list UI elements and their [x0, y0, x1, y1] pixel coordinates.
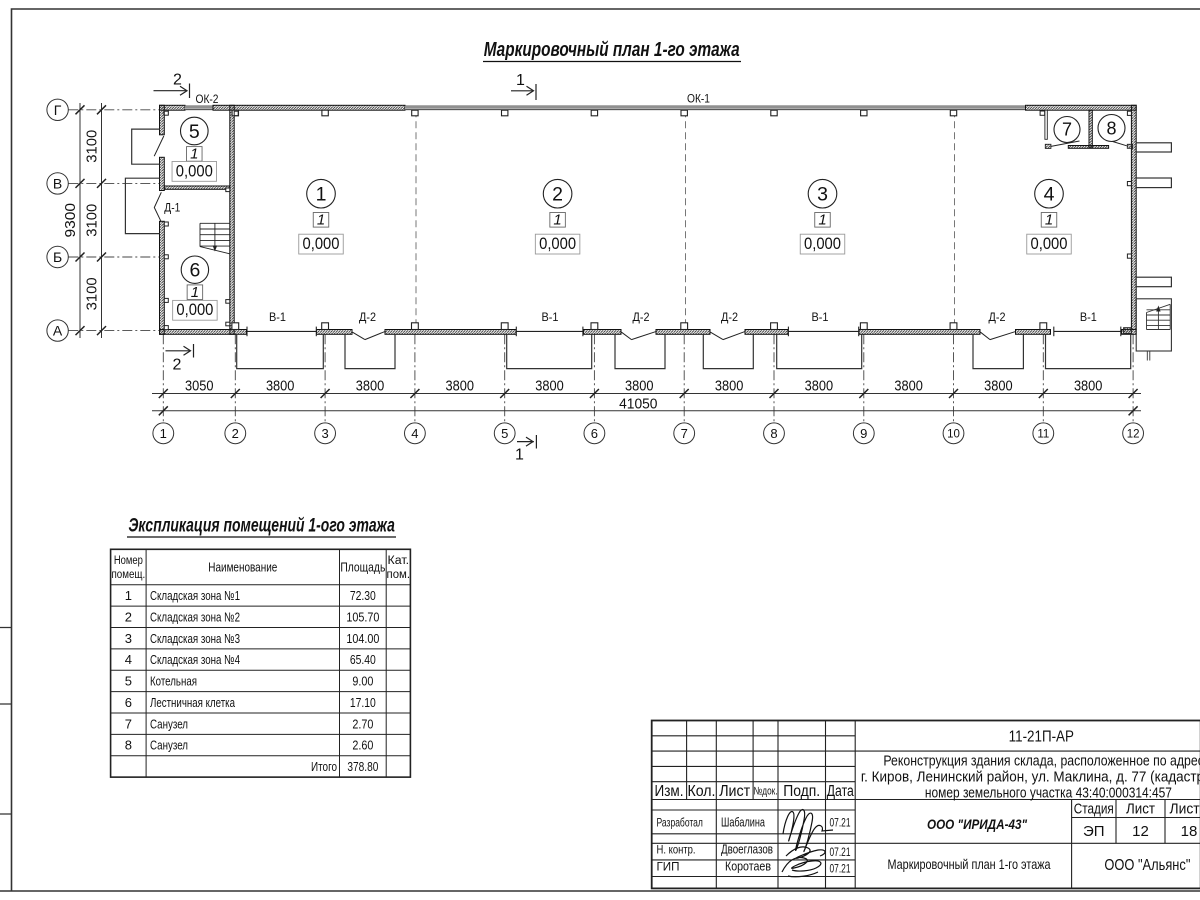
svg-text:Площадь: Площадь: [340, 560, 385, 575]
svg-text:1: 1: [191, 284, 199, 301]
svg-text:В-1: В-1: [269, 310, 286, 324]
svg-text:1: 1: [1045, 212, 1053, 229]
svg-text:17.10: 17.10: [350, 695, 376, 710]
svg-text:12: 12: [1132, 823, 1149, 840]
svg-text:Д-1: Д-1: [164, 200, 180, 214]
svg-text:65.40: 65.40: [350, 652, 376, 667]
svg-text:8: 8: [125, 738, 132, 753]
svg-text:Б: Б: [53, 249, 62, 265]
svg-text:4: 4: [411, 426, 418, 441]
svg-text:Складская зона №4: Складская зона №4: [150, 652, 240, 667]
svg-text:1: 1: [160, 426, 167, 441]
svg-text:12: 12: [1127, 429, 1140, 441]
svg-text:0,000: 0,000: [1031, 235, 1068, 253]
svg-text:7: 7: [1062, 120, 1072, 140]
svg-text:8: 8: [770, 426, 777, 441]
svg-text:1: 1: [316, 184, 327, 206]
svg-text:378.80: 378.80: [347, 759, 378, 774]
svg-text:1: 1: [818, 212, 826, 229]
svg-text:ООО "ИРИДА-43": ООО "ИРИДА-43": [927, 816, 1027, 832]
svg-text:А: А: [53, 323, 63, 339]
svg-text:72.30: 72.30: [350, 588, 376, 603]
svg-text:3050: 3050: [185, 378, 214, 394]
svg-text:3100: 3100: [85, 277, 101, 310]
svg-text:Котельная: Котельная: [150, 674, 197, 689]
svg-text:07.21: 07.21: [830, 816, 851, 830]
svg-text:1: 1: [125, 588, 132, 603]
svg-text:8: 8: [1106, 118, 1116, 138]
svg-text:Изм.: Изм.: [655, 783, 684, 800]
svg-text:Наименование: Наименование: [208, 560, 277, 575]
svg-text:Стадия: Стадия: [1074, 801, 1114, 818]
svg-text:ООО "Альянс": ООО "Альянс": [1104, 857, 1190, 874]
svg-text:0,000: 0,000: [176, 162, 213, 180]
svg-text:Д-2: Д-2: [359, 310, 376, 324]
svg-text:2.70: 2.70: [352, 716, 373, 731]
svg-text:ГИП: ГИП: [657, 860, 680, 874]
svg-text:3800: 3800: [1074, 378, 1103, 394]
svg-text:7: 7: [681, 426, 688, 441]
svg-text:Д-2: Д-2: [989, 310, 1006, 324]
svg-text:9: 9: [860, 426, 867, 441]
svg-text:11: 11: [1037, 429, 1049, 441]
svg-text:2: 2: [232, 426, 239, 441]
svg-text:6: 6: [591, 426, 598, 441]
svg-text:Экспликация помещений 1-ого эт: Экспликация помещений 1-ого этажа: [128, 516, 395, 537]
svg-text:Коротаев: Коротаев: [725, 859, 771, 874]
svg-text:Н. контр.: Н. контр.: [657, 843, 696, 857]
svg-text:3800: 3800: [446, 378, 475, 394]
svg-text:18: 18: [1181, 823, 1198, 840]
svg-text:Складская зона №2: Складская зона №2: [150, 609, 240, 624]
svg-text:Разработал: Разработал: [657, 816, 703, 830]
svg-text:В-1: В-1: [542, 310, 559, 324]
svg-text:1: 1: [516, 72, 525, 89]
svg-text:ЭП: ЭП: [1083, 823, 1105, 840]
svg-text:9300: 9300: [63, 203, 79, 238]
svg-text:1: 1: [190, 146, 198, 163]
svg-text:ОК-1: ОК-1: [687, 92, 710, 106]
svg-text:Г: Г: [54, 102, 62, 118]
svg-text:Санузел: Санузел: [150, 738, 188, 753]
svg-text:5: 5: [125, 674, 132, 689]
svg-text:3800: 3800: [894, 378, 923, 394]
svg-text:3800: 3800: [356, 378, 385, 394]
svg-text:Шабалина: Шабалина: [721, 815, 766, 830]
svg-text:2: 2: [125, 609, 132, 624]
svg-text:3100: 3100: [85, 130, 101, 163]
svg-text:Лестничная клетка: Лестничная клетка: [150, 695, 236, 710]
svg-text:6: 6: [125, 695, 132, 710]
svg-text:11-21П-АР: 11-21П-АР: [1009, 729, 1074, 746]
svg-text:2: 2: [552, 184, 563, 206]
svg-text:41050: 41050: [619, 397, 657, 413]
svg-text:4: 4: [125, 652, 132, 667]
svg-text:Двоеглазов: Двоеглазов: [721, 842, 773, 857]
svg-text:104.00: 104.00: [346, 631, 379, 646]
svg-text:7: 7: [125, 716, 132, 731]
svg-text:г. Киров, Ленинский район, ул.: г. Киров, Ленинский район, ул. Маклина, …: [861, 769, 1200, 786]
svg-text:Складская зона №3: Складская зона №3: [150, 631, 240, 646]
svg-text:3800: 3800: [715, 378, 744, 394]
svg-text:3800: 3800: [805, 378, 834, 394]
svg-text:В-1: В-1: [812, 310, 829, 324]
svg-text:5: 5: [501, 426, 508, 441]
svg-text:Кат.: Кат.: [388, 555, 410, 567]
svg-text:3100: 3100: [85, 204, 101, 237]
svg-text:Дата: Дата: [827, 783, 854, 800]
svg-text:пом.: пом.: [387, 569, 411, 581]
svg-text:3800: 3800: [625, 378, 654, 394]
svg-text:В-1: В-1: [1080, 310, 1097, 324]
svg-text:3800: 3800: [266, 378, 295, 394]
svg-text:2: 2: [173, 357, 182, 374]
svg-text:2: 2: [173, 72, 182, 89]
svg-text:номер земельного участка 43:40: номер земельного участка 43:40:000314:45…: [925, 784, 1172, 801]
svg-text:0,000: 0,000: [303, 235, 340, 253]
svg-text:3: 3: [817, 184, 828, 206]
svg-text:0,000: 0,000: [176, 301, 213, 319]
svg-text:Лист: Лист: [1126, 801, 1155, 818]
svg-text:Санузел: Санузел: [150, 716, 188, 731]
svg-text:Реконструкция здания склада, р: Реконструкция здания склада, расположенн…: [883, 753, 1200, 770]
svg-text:10: 10: [947, 429, 960, 441]
svg-text:2.60: 2.60: [352, 738, 373, 753]
svg-text:0,000: 0,000: [539, 235, 576, 253]
svg-text:5: 5: [189, 121, 200, 143]
svg-text:№док.: №док.: [754, 786, 778, 798]
svg-text:0,000: 0,000: [804, 235, 841, 253]
svg-text:помещ.: помещ.: [111, 569, 145, 581]
svg-text:В: В: [53, 175, 62, 191]
svg-text:1: 1: [317, 212, 325, 229]
svg-text:07.21: 07.21: [830, 862, 851, 876]
svg-text:Д-2: Д-2: [721, 310, 738, 324]
svg-text:07.21: 07.21: [830, 845, 851, 859]
svg-text:Номер: Номер: [114, 555, 143, 567]
svg-text:9.00: 9.00: [352, 674, 373, 689]
svg-text:1: 1: [515, 447, 524, 464]
svg-text:1: 1: [553, 212, 561, 229]
svg-text:3800: 3800: [984, 378, 1013, 394]
svg-text:3: 3: [321, 426, 328, 441]
svg-text:3800: 3800: [535, 378, 564, 394]
svg-text:6: 6: [189, 260, 200, 282]
svg-text:Подп.: Подп.: [783, 783, 820, 800]
svg-text:Итого: Итого: [311, 759, 337, 774]
svg-text:3: 3: [125, 631, 132, 646]
svg-text:Д-2: Д-2: [633, 310, 650, 324]
svg-text:4: 4: [1044, 184, 1055, 206]
svg-text:Кол.: Кол.: [688, 783, 716, 800]
svg-text:105.70: 105.70: [346, 609, 379, 624]
svg-text:ОК-2: ОК-2: [196, 92, 219, 106]
svg-text:Лист: Лист: [719, 783, 750, 800]
svg-text:Маркировочный план 1-го этажа: Маркировочный план 1-го этажа: [484, 39, 740, 61]
svg-text:Листов: Листов: [1170, 801, 1200, 818]
svg-text:Маркировочный план 1-го этажа: Маркировочный план 1-го этажа: [888, 856, 1051, 872]
svg-text:Складская зона №1: Складская зона №1: [150, 588, 240, 603]
